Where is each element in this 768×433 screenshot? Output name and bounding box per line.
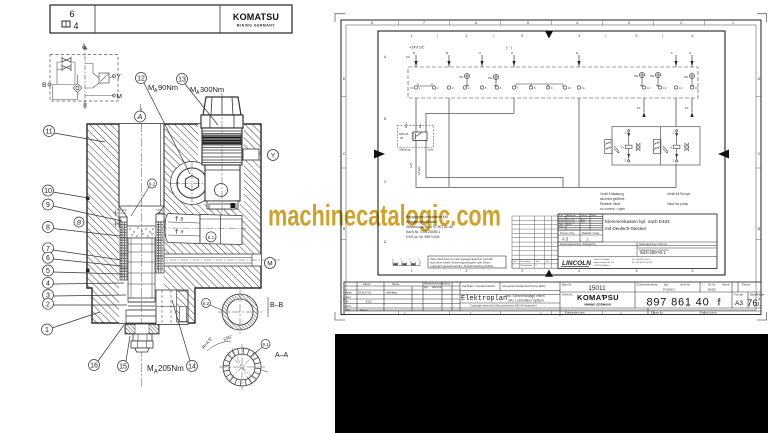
svg-text:machinecatalogic.com: machinecatalogic.com [268,199,501,232]
